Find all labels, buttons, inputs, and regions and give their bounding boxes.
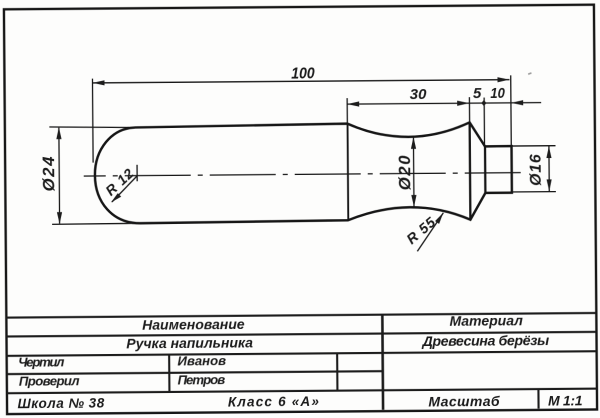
svg-text:Иванов: Иванов [177,353,226,368]
svg-text:5: 5 [473,85,482,102]
svg-text:Ø24: Ø24 [39,155,58,192]
svg-text:Ø16: Ø16 [528,154,545,186]
svg-text:Материал: Материал [449,312,523,329]
svg-text:Ручка напильника: Ручка напильника [126,334,253,351]
svg-text:30: 30 [410,86,427,103]
svg-text:М 1:1: М 1:1 [548,392,583,408]
svg-text:R 55: R 55 [404,214,440,248]
svg-text:10: 10 [490,85,505,102]
svg-text:Древесина берёзы: Древесина берёзы [421,333,549,350]
svg-text:Чертил: Чертил [18,355,64,370]
svg-text:Школа № 38: Школа № 38 [17,395,104,411]
svg-text:Масштаб: Масштаб [428,393,500,410]
svg-text:Наименование: Наименование [142,316,245,333]
svg-text:100: 100 [291,65,315,82]
svg-text:Ø20: Ø20 [395,154,414,191]
svg-text:Класс 6 «А»: Класс 6 «А» [228,394,320,410]
svg-text:Проверил: Проверил [19,373,80,388]
svg-text:Петров: Петров [177,372,225,387]
